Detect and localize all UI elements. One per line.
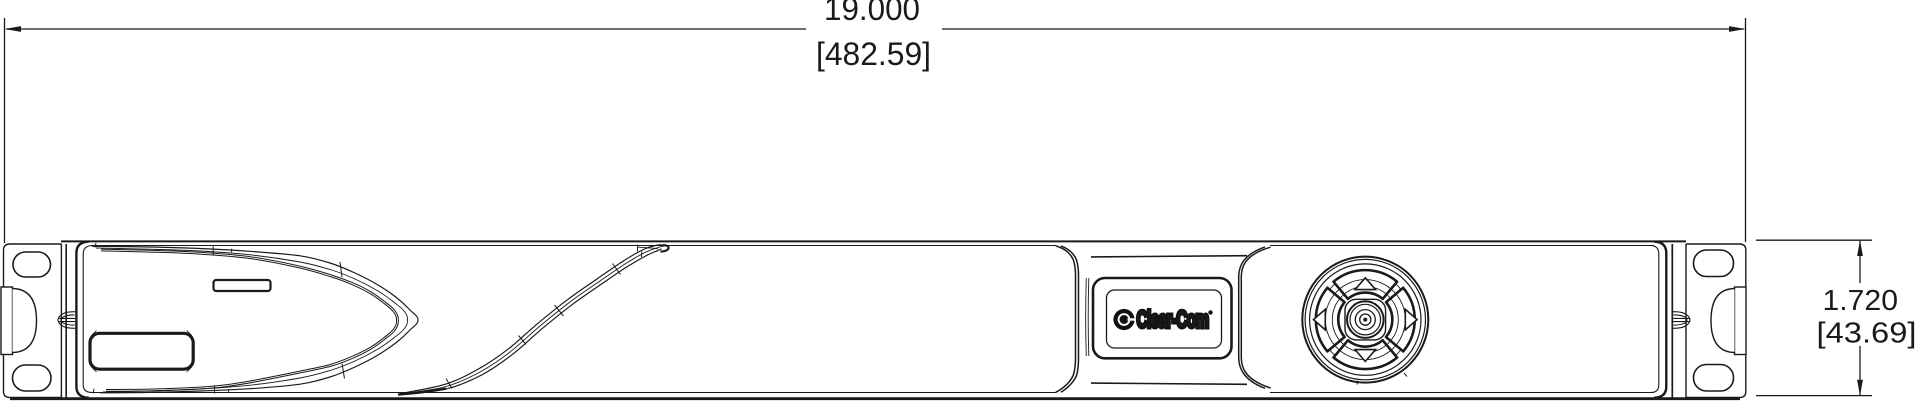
svg-text:19.000: 19.000 <box>824 0 920 27</box>
svg-text:1.720: 1.720 <box>1823 285 1899 317</box>
svg-text:[482.59]: [482.59] <box>816 36 931 72</box>
svg-text:Clear-Com: Clear-Com <box>1137 307 1209 334</box>
svg-text:[43.69]: [43.69] <box>1817 318 1917 350</box>
